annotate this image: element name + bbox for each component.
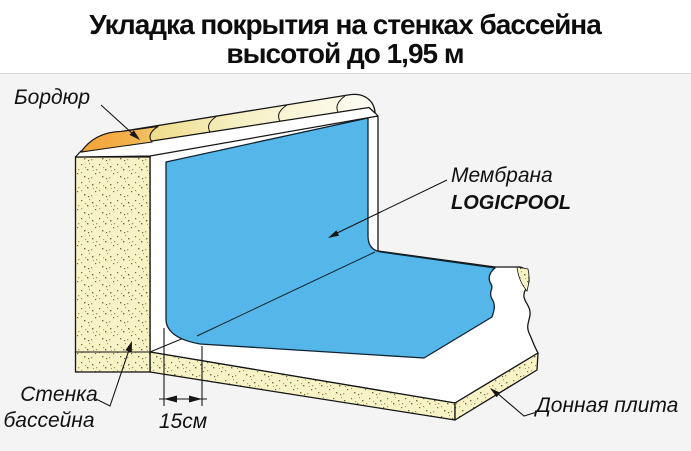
slab-label: Донная плита [534,394,678,417]
pool-wall-section [76,157,151,372]
page-title-line2: высотой до 1,95 м [226,38,463,69]
membrane-label-line1: Мембрана [451,164,553,187]
dimension-label: 15см [159,410,207,433]
membrane-label-line2: LOGICPOOL [451,192,571,214]
diagram-canvas: Укладка покрытия на стенках бассейна выс… [0,0,691,451]
page-title-line1: Укладка покрытия на стенках бассейна [89,9,602,40]
curb-label: Бордюр [14,86,90,109]
wall-label-line2: бассейна [3,409,94,432]
wall-label-line1: Стенка [20,383,98,406]
